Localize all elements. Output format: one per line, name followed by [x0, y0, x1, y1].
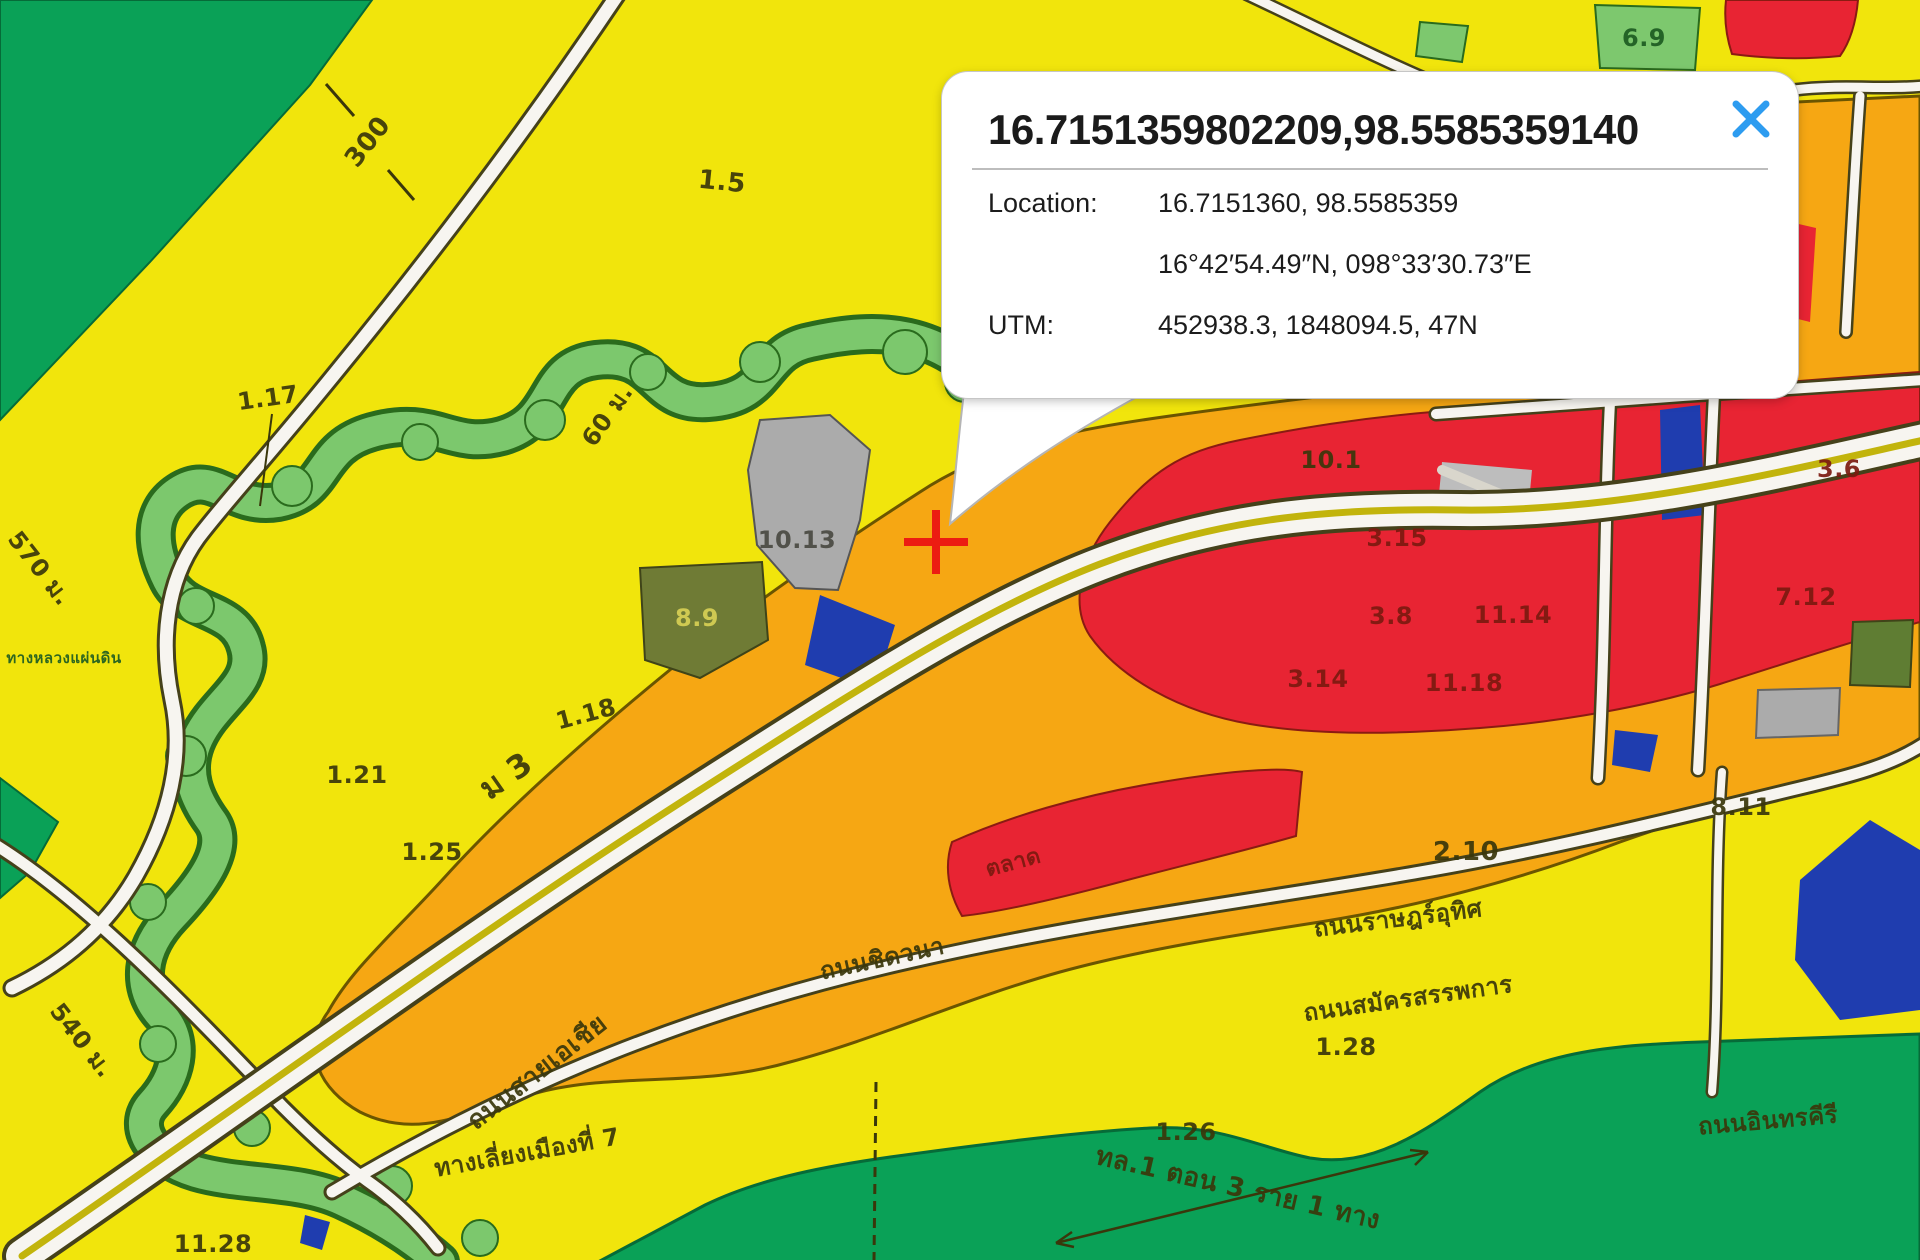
popup-row-location: Location: 16.7151360, 98.5585359 — [988, 188, 1458, 219]
popup-title: 16.7151359802209,98.5585359140 — [988, 106, 1639, 154]
popup-divider — [972, 168, 1768, 170]
row-label: UTM: — [988, 310, 1158, 341]
close-button[interactable] — [1726, 94, 1776, 144]
popup-row-utm: UTM: 452938.3, 1848094.5, 47N — [988, 310, 1478, 341]
coordinate-popup: 16.7151359802209,98.5585359140 Location:… — [942, 72, 1798, 398]
popup-row-dms: 16°42′54.49″N, 098°33′30.73″E — [988, 249, 1532, 280]
close-icon — [1726, 94, 1776, 144]
row-value: 16°42′54.49″N, 098°33′30.73″E — [1158, 249, 1532, 280]
row-value: 452938.3, 1848094.5, 47N — [1158, 310, 1478, 341]
map-viewer: 3001.51.1760 ม.10.138.9ม 31.181.211.2557… — [0, 0, 1920, 1260]
row-label — [988, 249, 1158, 280]
row-label: Location: — [988, 188, 1158, 219]
row-value: 16.7151360, 98.5585359 — [1158, 188, 1458, 219]
